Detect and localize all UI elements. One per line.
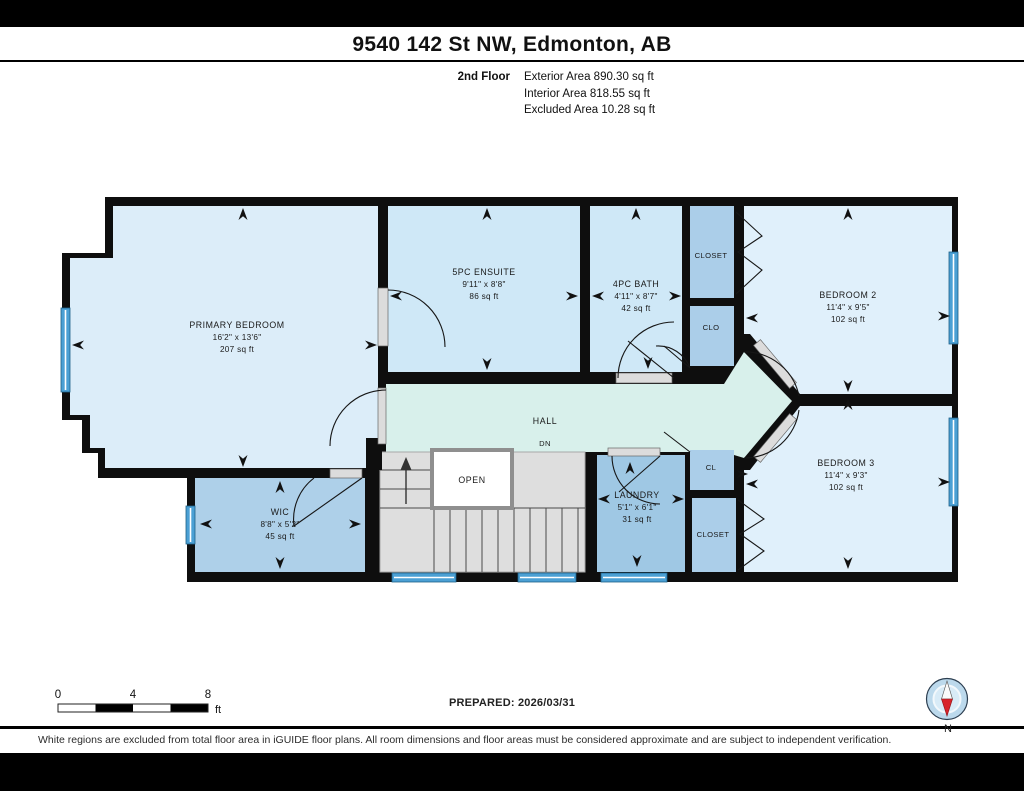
window — [61, 308, 70, 392]
window — [392, 573, 456, 582]
room-area: 102 sq ft — [831, 315, 866, 324]
clo-label: CLO — [703, 323, 720, 332]
room-dims: 8'8" x 5'2" — [260, 520, 299, 529]
cl-label: CL — [706, 463, 717, 472]
door-leaf — [616, 373, 672, 383]
window — [949, 252, 958, 344]
window — [186, 506, 195, 544]
room-area: 86 sq ft — [469, 292, 499, 301]
closet-label: CLOSET — [695, 251, 728, 260]
room-label: PRIMARY BEDROOM — [189, 320, 284, 330]
room-dims: 9'11" x 8'8" — [462, 280, 505, 289]
floorplan-drawing: PRIMARY BEDROOM 16'2" x 13'6" 207 sq ft … — [0, 0, 1024, 791]
room-label: BEDROOM 3 — [817, 458, 874, 468]
room-label: WIC — [271, 507, 290, 517]
hall-label: HALL — [533, 416, 557, 426]
door-leaf — [378, 288, 388, 346]
room-dims: 4'11" x 8'7" — [614, 292, 657, 301]
prepared-date: PREPARED: 2026/03/31 — [0, 697, 1024, 709]
door-leaf — [608, 448, 660, 456]
compass-icon: N — [921, 672, 973, 736]
footer-divider — [0, 726, 1024, 729]
room-dims: 5'1" x 6'1" — [617, 503, 656, 512]
room-area: 31 sq ft — [622, 515, 652, 524]
door-leaf — [378, 388, 386, 444]
room-label: LAUNDRY — [614, 490, 659, 500]
room-label: BEDROOM 2 — [819, 290, 876, 300]
room-dims: 11'4" x 9'3" — [824, 471, 867, 480]
closet-label: CLOSET — [697, 530, 730, 539]
floorplan-page: 9540 142 St NW, Edmonton, AB 2nd Floor E… — [0, 0, 1024, 791]
open-label: OPEN — [458, 475, 485, 485]
room-dims: 11'4" x 9'5" — [826, 303, 869, 312]
room-area: 207 sq ft — [220, 345, 255, 354]
window — [518, 573, 576, 582]
window — [949, 418, 958, 506]
bottom-black-bar — [0, 753, 1024, 791]
room-area: 42 sq ft — [621, 304, 651, 313]
room-area: 45 sq ft — [265, 532, 295, 541]
disclaimer-text: White regions are excluded from total fl… — [38, 734, 998, 746]
window — [601, 573, 667, 582]
door-leaf — [330, 469, 362, 478]
room-dims: 16'2" x 13'6" — [213, 333, 262, 342]
dn-label: DN — [539, 439, 551, 448]
room-ensuite — [388, 206, 580, 372]
room-label: 4PC BATH — [613, 279, 659, 289]
room-area: 102 sq ft — [829, 483, 864, 492]
room-label: 5PC ENSUITE — [452, 267, 515, 277]
room-clo — [690, 306, 734, 366]
